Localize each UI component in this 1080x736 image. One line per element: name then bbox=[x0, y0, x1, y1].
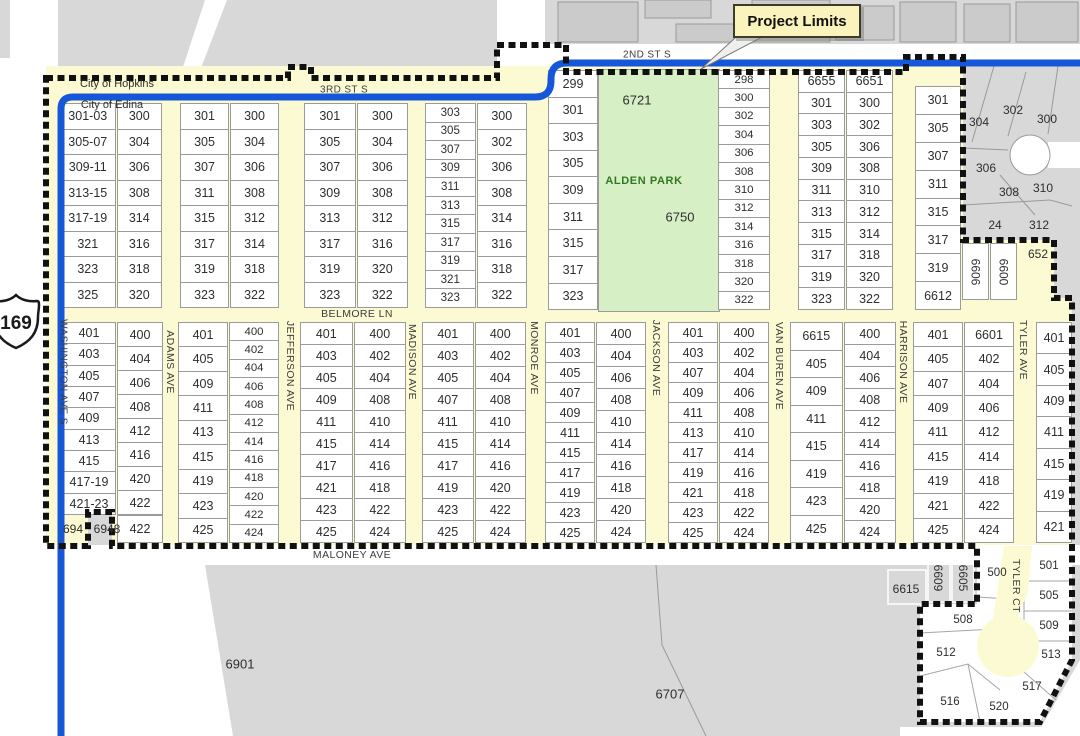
parcel: 302 bbox=[477, 129, 528, 156]
parcel: 407 bbox=[422, 388, 474, 411]
parcel: 416 bbox=[844, 454, 897, 477]
parcel: 313 bbox=[304, 205, 356, 232]
parcel: 323 bbox=[425, 288, 476, 308]
parcel-column: 401405407409411415419421425 bbox=[913, 322, 963, 543]
parcel: 418 bbox=[719, 482, 769, 503]
parcel: 301 bbox=[304, 103, 356, 130]
parcel: 305 bbox=[180, 129, 229, 156]
parcel: 311 bbox=[798, 179, 845, 202]
parcel: 319 bbox=[915, 253, 961, 282]
parcel-column: 401403405407411415417419423425 bbox=[422, 322, 474, 543]
parcel: 425 bbox=[913, 518, 963, 543]
parcel: 415 bbox=[178, 444, 228, 469]
parcel: 401 bbox=[668, 322, 718, 343]
parcel: 308 bbox=[477, 180, 528, 207]
parcel: 400 bbox=[844, 322, 897, 345]
parcel-column: 401403405409411415417421423425 bbox=[300, 322, 353, 543]
parcel: 402 bbox=[354, 344, 407, 367]
parcel-block-n3: 3013053073093133173193233003043063083123… bbox=[304, 103, 408, 308]
parcel: 420 bbox=[117, 466, 163, 491]
street-label-jackson-ave: JACKSON AVE bbox=[650, 320, 662, 397]
parcel: 6612 bbox=[915, 281, 961, 310]
parcel: 403 bbox=[422, 344, 474, 367]
parcel: 6651 bbox=[846, 70, 893, 93]
parcel: 317 bbox=[915, 225, 961, 254]
street-label-maloney-ave: MALONEY AVE bbox=[313, 549, 391, 561]
parcel: 306 bbox=[718, 144, 770, 163]
svg-text:169: 169 bbox=[0, 313, 32, 334]
parcel: 411 bbox=[913, 420, 963, 445]
parcel: 421 bbox=[668, 482, 718, 503]
parcel: 315 bbox=[180, 205, 229, 232]
parcel: 301 bbox=[915, 86, 961, 115]
parcel-block-s1b: 422 bbox=[117, 515, 163, 543]
parcel: 407 bbox=[913, 371, 963, 396]
parcel-column: 6655301303305309311313315317319323 bbox=[798, 70, 845, 310]
parcel: 304 bbox=[718, 125, 770, 144]
parcel: 402 bbox=[229, 340, 279, 359]
parcel-column: 301305307311315317319323 bbox=[180, 103, 229, 308]
map-label-310: 310 bbox=[1033, 181, 1053, 195]
parcel: 413 bbox=[62, 429, 116, 451]
parcel: 405 bbox=[913, 346, 963, 371]
parcel: 323 bbox=[798, 287, 845, 310]
parcel: 421 bbox=[300, 476, 353, 499]
map-label-516: 516 bbox=[940, 696, 959, 708]
parcel: 6655 bbox=[798, 70, 845, 93]
parcel: 317 bbox=[304, 231, 356, 258]
parcel: 312 bbox=[357, 205, 409, 232]
parcel-column: 400402404408410414416418422424 bbox=[354, 322, 407, 543]
parcel: 417 bbox=[422, 454, 474, 477]
parcel: 404 bbox=[354, 366, 407, 389]
map-label-694: 694 bbox=[63, 522, 83, 536]
parcel: 305 bbox=[548, 150, 598, 178]
parcel: 320 bbox=[846, 266, 893, 289]
parcel: 419 bbox=[178, 469, 228, 494]
parcel: 412 bbox=[844, 410, 897, 433]
parcel: 411 bbox=[1036, 416, 1072, 448]
highway-169-shield: 169 bbox=[0, 295, 39, 348]
parcel: 401 bbox=[545, 322, 595, 343]
parcel: 417 bbox=[668, 442, 718, 463]
parcel: 404 bbox=[719, 362, 769, 383]
parcel: 300 bbox=[718, 88, 770, 107]
parcel-block-s9: 401405409411415419421 bbox=[1036, 322, 1072, 543]
parcel: 400 bbox=[475, 322, 527, 345]
parcel: 400 bbox=[229, 322, 279, 341]
parcel: 404 bbox=[475, 366, 527, 389]
map-label-6721: 6721 bbox=[623, 93, 652, 108]
street-label-3rd-st-s: 3RD ST S bbox=[320, 85, 368, 96]
parcel-block-n5-east: 298300302304306308310312314316318320322 bbox=[718, 70, 770, 310]
map-label-501: 501 bbox=[1039, 560, 1058, 572]
map-label-652: 652 bbox=[1028, 247, 1048, 261]
maloney-road bbox=[40, 545, 1080, 565]
parcel: 309 bbox=[548, 176, 598, 204]
parcel: 422 bbox=[964, 493, 1014, 518]
parcel: 404 bbox=[596, 344, 646, 367]
parcel: 419 bbox=[913, 469, 963, 494]
parcel: 401 bbox=[300, 322, 353, 345]
parcel: 313 bbox=[798, 200, 845, 223]
parcel: 404 bbox=[117, 346, 163, 371]
parcel: 312 bbox=[846, 200, 893, 223]
parcel-block-s5: 4014034054074094114154174194234254004044… bbox=[545, 322, 646, 543]
parcel: 415 bbox=[790, 432, 843, 461]
parcel: 421 bbox=[913, 493, 963, 518]
parcel: 305 bbox=[798, 135, 845, 158]
parcel: 400 bbox=[354, 322, 407, 345]
parcel: 405 bbox=[790, 350, 843, 379]
map-label-304: 304 bbox=[969, 115, 989, 129]
parcel-block-s8: 4014054074094114154194214256601402404406… bbox=[913, 322, 1014, 543]
parcel: 403 bbox=[668, 342, 718, 363]
parcel-column: 6615405409411415419423425 bbox=[790, 322, 843, 543]
parcel: 304 bbox=[117, 129, 162, 156]
parcel: 317 bbox=[548, 256, 598, 284]
parcel: 316 bbox=[357, 231, 409, 258]
parcel: 405 bbox=[545, 362, 595, 383]
parcel-column: 300304306308312314318322 bbox=[230, 103, 279, 308]
parcel: 310 bbox=[846, 179, 893, 202]
parcel: 318 bbox=[230, 256, 279, 283]
parcel: 315 bbox=[425, 214, 476, 234]
parcel-block-n2: 3013053073113153173193233003043063083123… bbox=[180, 103, 279, 308]
parcel: 315 bbox=[915, 198, 961, 227]
parcel: 422 bbox=[354, 498, 407, 521]
parcel: 411 bbox=[668, 402, 718, 423]
parcel: 311 bbox=[915, 170, 961, 199]
parcel: 402 bbox=[964, 346, 1014, 371]
parcel: 418 bbox=[844, 476, 897, 499]
parcel: 408 bbox=[719, 402, 769, 423]
parcel-column: 401405409411413415419423425 bbox=[178, 322, 228, 543]
parcel: 6600 bbox=[990, 243, 1017, 300]
parcel-column: 301305307309313317319323 bbox=[304, 103, 356, 308]
parcel: 415 bbox=[1036, 448, 1072, 480]
parcel-column: 401405409411415419421 bbox=[1036, 322, 1072, 543]
east-outside-area bbox=[963, 66, 1080, 240]
parcel: 308 bbox=[117, 180, 162, 207]
parcel-column: 422 bbox=[117, 515, 163, 543]
parcel: 409 bbox=[913, 395, 963, 420]
parcel: 425 bbox=[300, 520, 353, 543]
parcel: 319 bbox=[798, 266, 845, 289]
parcel: 421 bbox=[1036, 511, 1072, 543]
parcel: 307 bbox=[425, 140, 476, 160]
street-label-madison-ave: MADISON AVE bbox=[406, 324, 418, 400]
parcel-column: 300304306308312316320322 bbox=[357, 103, 409, 308]
map-label-512: 512 bbox=[936, 647, 955, 659]
parcel: 422 bbox=[475, 498, 527, 521]
parcel-column: 303305307309311313315317319321323 bbox=[425, 103, 476, 308]
parcel: 302 bbox=[718, 107, 770, 126]
parcel: 411 bbox=[178, 395, 228, 420]
tyler-ct-bulb bbox=[977, 615, 1039, 677]
parcel: 318 bbox=[117, 256, 162, 283]
plat-map: 169 Project Limits 301-03305-07309-11313… bbox=[0, 0, 1080, 736]
street-label-van-buren-ave: VAN BUREN AVE bbox=[773, 322, 785, 410]
parcel: 300 bbox=[846, 92, 893, 115]
parcel: 404 bbox=[229, 359, 279, 378]
parcel: 406 bbox=[964, 395, 1014, 420]
parcel: 314 bbox=[230, 231, 279, 258]
map-label-520: 520 bbox=[989, 701, 1008, 713]
street-label-tyler-ct: TYLER CT bbox=[1010, 559, 1022, 613]
parcel: 303 bbox=[798, 113, 845, 136]
parcel-column: 301-03305-07309-11313-15317-19321323325 bbox=[60, 103, 116, 308]
street-label-harrison-ave: HARRISON AVE bbox=[897, 321, 909, 404]
parcel: 323 bbox=[304, 282, 356, 309]
parcel-column: 400402404406408410414416418422424 bbox=[719, 322, 769, 543]
parcel: 408 bbox=[475, 388, 527, 411]
parcel: 409 bbox=[545, 402, 595, 423]
parcel: 321 bbox=[60, 231, 116, 258]
parcel: 320 bbox=[718, 272, 770, 291]
parcel: 424 bbox=[844, 520, 897, 543]
parcel-block-s6: 4014034074094114134174194214234254004024… bbox=[668, 322, 769, 543]
parcel: 423 bbox=[178, 493, 228, 518]
parcel-column: 401403405407409413415417-19421-23 bbox=[62, 322, 116, 515]
map-label-city-of-hopkins: City of Hopkins bbox=[80, 78, 154, 90]
parcel: 307 bbox=[180, 154, 229, 181]
parcel: 406 bbox=[719, 382, 769, 403]
street-label-washington-ave-s: WASHINGTON AVE S bbox=[58, 319, 69, 425]
parcel: 317 bbox=[798, 244, 845, 267]
parcel: 415 bbox=[300, 432, 353, 455]
parcel: 416 bbox=[229, 450, 279, 469]
parcel: 408 bbox=[596, 388, 646, 411]
parcel-column: 400404406408410414416418420424 bbox=[596, 322, 646, 543]
parcel-column: 300302306308314316318322 bbox=[477, 103, 528, 308]
parcel: 317-19 bbox=[60, 205, 116, 232]
parcel-block-s2: 4014054094114134154194234254004024044064… bbox=[178, 322, 279, 543]
parcel: 409 bbox=[790, 377, 843, 406]
parcel: 317 bbox=[180, 231, 229, 258]
parcel: 322 bbox=[477, 282, 528, 309]
parcel: 423 bbox=[790, 487, 843, 516]
parcel: 298 bbox=[718, 70, 770, 89]
parcel: 305-07 bbox=[60, 129, 116, 156]
parcel: 420 bbox=[596, 498, 646, 521]
street-label-2nd-st-s: 2ND ST S bbox=[623, 50, 671, 61]
parcel: 425 bbox=[668, 522, 718, 543]
map-label-24: 24 bbox=[988, 218, 1001, 232]
parcel: 419 bbox=[790, 460, 843, 489]
parcel: 410 bbox=[354, 410, 407, 433]
parcel: 311 bbox=[425, 177, 476, 197]
parcel: 419 bbox=[1036, 479, 1072, 511]
parcel-block-s3: 4014034054094114154174214234254004024044… bbox=[300, 322, 406, 543]
parcel: 314 bbox=[718, 217, 770, 236]
parcel-number: 6606 bbox=[969, 258, 983, 285]
parcel: 412 bbox=[229, 414, 279, 433]
parcel: 407 bbox=[668, 362, 718, 383]
parcel: 307 bbox=[915, 142, 961, 171]
parcel: 416 bbox=[475, 454, 527, 477]
parcel: 419 bbox=[545, 482, 595, 503]
project-limits-callout: Project Limits bbox=[733, 4, 861, 38]
parcel: 422 bbox=[117, 490, 163, 515]
parcel: 425 bbox=[790, 515, 843, 544]
parcel: 302 bbox=[846, 113, 893, 136]
parcel: 423 bbox=[668, 502, 718, 523]
parcel: 415 bbox=[913, 444, 963, 469]
parcel: 323 bbox=[60, 256, 116, 283]
parcel: 314 bbox=[117, 205, 162, 232]
parcel: 311 bbox=[180, 180, 229, 207]
parcel: 304 bbox=[230, 129, 279, 156]
parcel: 420 bbox=[844, 498, 897, 521]
parcel: 309-11 bbox=[60, 154, 116, 181]
parcel: 301 bbox=[798, 92, 845, 115]
parcel: 413 bbox=[668, 422, 718, 443]
map-label-508: 508 bbox=[953, 614, 972, 626]
street-label-belmore-ln: BELMORE LN bbox=[321, 308, 393, 320]
parcel: 6606 bbox=[962, 243, 989, 300]
parcel: 424 bbox=[229, 524, 279, 543]
parcel: 401 bbox=[913, 322, 963, 347]
parcel: 415 bbox=[62, 450, 116, 472]
parcel: 411 bbox=[300, 410, 353, 433]
parcel: 410 bbox=[475, 410, 527, 433]
map-label-500: 500 bbox=[987, 567, 1006, 579]
parcel: 419 bbox=[668, 462, 718, 483]
map-label-300: 300 bbox=[1037, 112, 1057, 126]
parcel-column: 400404406408412416420422 bbox=[117, 322, 163, 515]
parcel: 400 bbox=[719, 322, 769, 343]
parcel: 418 bbox=[354, 476, 407, 499]
map-label-306: 306 bbox=[976, 161, 996, 175]
parcel: 416 bbox=[117, 442, 163, 467]
parcel: 405 bbox=[62, 365, 116, 387]
parcel-column: 401403407409411413417419421423425 bbox=[668, 322, 718, 543]
map-label-513: 513 bbox=[1041, 649, 1060, 661]
parcel: 401 bbox=[1036, 322, 1072, 354]
parcel: 423 bbox=[545, 502, 595, 523]
parcel: 415 bbox=[545, 442, 595, 463]
parcel: 417 bbox=[545, 462, 595, 483]
parcel: 405 bbox=[422, 366, 474, 389]
parcel: 414 bbox=[229, 432, 279, 451]
parcel: 412 bbox=[117, 418, 163, 443]
parcel-block-n1: 301-03305-07309-11313-15317-193213233253… bbox=[60, 103, 162, 308]
parcel: 308 bbox=[846, 157, 893, 180]
parcel: 416 bbox=[354, 454, 407, 477]
map-label-505: 505 bbox=[1039, 590, 1058, 602]
parcel: 403 bbox=[545, 342, 595, 363]
parcel: 401 bbox=[62, 322, 116, 344]
parcel: 305 bbox=[915, 114, 961, 143]
parcel: 322 bbox=[357, 282, 409, 309]
parcel-column: 3013053073113153173196612 bbox=[915, 86, 961, 310]
street-label-jefferson-ave: JEFFERSON AVE bbox=[284, 321, 296, 411]
parcel: 322 bbox=[846, 287, 893, 310]
map-label-6605: 6605 bbox=[956, 565, 970, 592]
parcel: 320 bbox=[117, 282, 162, 309]
parcel: 300 bbox=[230, 103, 279, 130]
map-label-308: 308 bbox=[999, 185, 1019, 199]
parcel: 308 bbox=[718, 162, 770, 181]
parcel-block-n4: 3033053073093113133153173193213233003023… bbox=[425, 103, 527, 308]
parcel: 424 bbox=[596, 520, 646, 543]
parcel-number: 6600 bbox=[997, 258, 1011, 285]
parcel: 420 bbox=[475, 476, 527, 499]
parcel: 424 bbox=[964, 518, 1014, 543]
map-label-6707: 6707 bbox=[656, 687, 685, 702]
parcel: 424 bbox=[475, 520, 527, 543]
map-label-509: 509 bbox=[1039, 620, 1058, 632]
parcel-column: 6651300302306308310312314318320322 bbox=[846, 70, 893, 310]
parcel: 6601 bbox=[964, 322, 1014, 347]
parcel: 318 bbox=[846, 244, 893, 267]
parcel: 413 bbox=[178, 420, 228, 445]
parcel: 322 bbox=[718, 291, 770, 310]
parcel: 401 bbox=[422, 322, 474, 345]
parcel: 417-19 bbox=[62, 471, 116, 493]
parcel: 406 bbox=[596, 366, 646, 389]
parcel: 323 bbox=[548, 283, 598, 311]
parcel: 406 bbox=[229, 377, 279, 396]
parcel: 319 bbox=[304, 256, 356, 283]
parcel: 315 bbox=[798, 222, 845, 245]
parcel: 407 bbox=[62, 386, 116, 408]
parcel: 409 bbox=[300, 388, 353, 411]
parcel: 401 bbox=[178, 322, 228, 347]
parcel: 314 bbox=[846, 222, 893, 245]
parcel-column: 300304306308314316318320 bbox=[117, 103, 162, 308]
parcel: 412 bbox=[964, 420, 1014, 445]
map-label-302: 302 bbox=[1003, 103, 1023, 117]
parcel: 422 bbox=[117, 515, 163, 543]
parcel: 319 bbox=[425, 251, 476, 271]
parcel: 318 bbox=[718, 254, 770, 273]
parcel: 323 bbox=[180, 282, 229, 309]
parcel: 309 bbox=[425, 159, 476, 179]
parcel: 414 bbox=[719, 442, 769, 463]
parcel-block-n7: 3013053073113153173196612 bbox=[915, 86, 961, 310]
parcel: 400 bbox=[117, 322, 163, 347]
parcel: 420 bbox=[229, 487, 279, 506]
parcel: 318 bbox=[477, 256, 528, 283]
alden-park-area bbox=[598, 69, 720, 312]
parcel: 400 bbox=[596, 322, 646, 345]
street-label-adams-ave: ADAMS AVE bbox=[164, 330, 176, 394]
parcel: 424 bbox=[354, 520, 407, 543]
parcel: 310 bbox=[718, 180, 770, 199]
parcel-column: 298300302304306308310312314316318320322 bbox=[718, 70, 770, 310]
parcel: 313-15 bbox=[60, 180, 116, 207]
parcel: 405 bbox=[178, 346, 228, 371]
parcel-column: 401403405407409411415417419423425 bbox=[545, 322, 595, 543]
parcel: 316 bbox=[117, 231, 162, 258]
map-label-517: 517 bbox=[1022, 681, 1041, 693]
parcel: 306 bbox=[846, 135, 893, 158]
parcel: 417 bbox=[300, 454, 353, 477]
map-label-312: 312 bbox=[1029, 218, 1049, 232]
map-label-6901: 6901 bbox=[226, 657, 255, 672]
parcel: 425 bbox=[178, 518, 228, 543]
parcel: 316 bbox=[477, 231, 528, 258]
parcel: 425 bbox=[545, 522, 595, 543]
parcel: 305 bbox=[304, 129, 356, 156]
parcel: 408 bbox=[229, 395, 279, 414]
parcel: 312 bbox=[230, 205, 279, 232]
parcel-block-s7: 6615405409411415419423425400404406408412… bbox=[790, 322, 896, 543]
parcel: 314 bbox=[477, 205, 528, 232]
parcel: 404 bbox=[844, 344, 897, 367]
